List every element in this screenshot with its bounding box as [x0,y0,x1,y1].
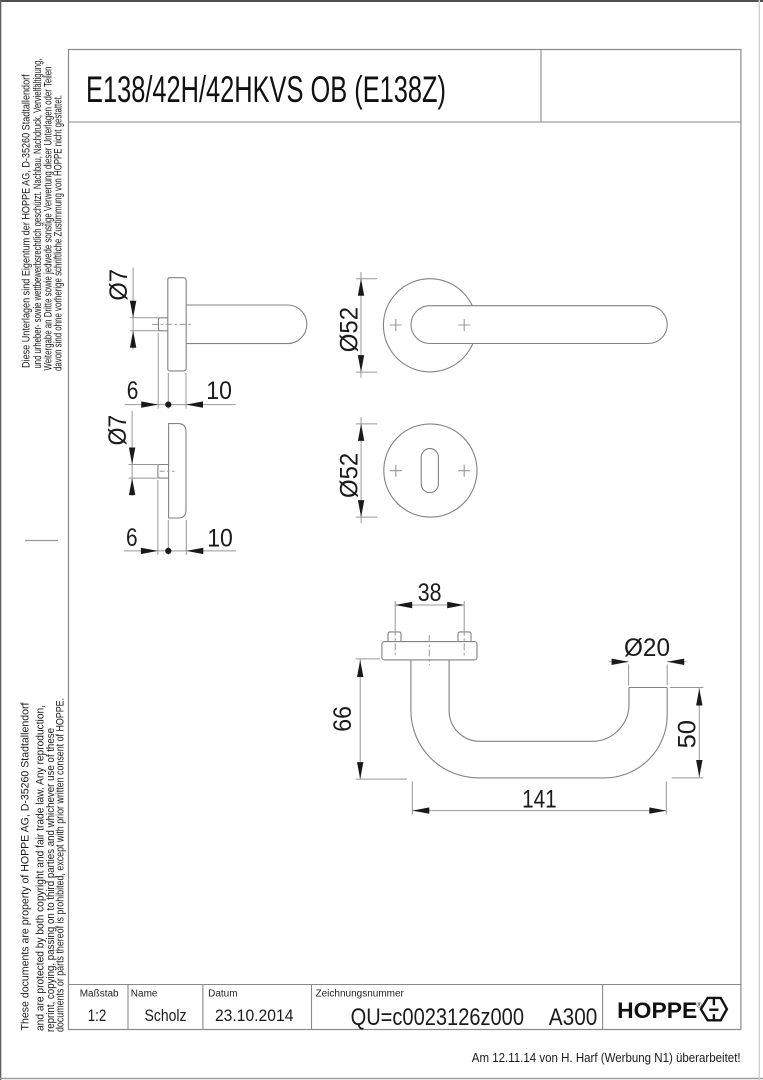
svg-text:Ø52: Ø52 [336,307,364,352]
svg-text:Scholz: Scholz [145,1006,187,1025]
svg-text:23.10.2014: 23.10.2014 [215,1006,294,1025]
svg-text:10: 10 [206,377,232,405]
svg-text:Ø52: Ø52 [336,453,364,498]
svg-text:10: 10 [207,525,233,553]
svg-text:Ø7: Ø7 [105,269,133,301]
svg-text:6: 6 [126,524,138,552]
svg-text:Diese Unterlagen sind Eigentum: Diese Unterlagen sind Eigentum der HOPPE… [20,74,32,368]
svg-text:Am 12.11.14 von H. Harf (Werbu: Am 12.11.14 von H. Harf (Werbung N1) übe… [472,1050,741,1065]
svg-text:141: 141 [522,786,557,814]
svg-text:QU=c0023126z000: QU=c0023126z000 [351,1004,524,1031]
svg-text:Name: Name [131,989,158,1000]
svg-text:Maßstab: Maßstab [80,989,119,1000]
svg-text:Ø7: Ø7 [104,415,132,446]
svg-text:HOPPE: HOPPE [617,998,697,1023]
svg-text:Ø20: Ø20 [624,634,670,662]
svg-text:38: 38 [418,579,442,607]
svg-text:1:2: 1:2 [88,1006,107,1025]
svg-text:Zeichnungsnummer: Zeichnungsnummer [316,989,405,1000]
svg-text:These documents are property o: These documents are property of HOPPE AG… [19,702,31,1031]
svg-text:E138/42H/42HKVS OB (E138Z): E138/42H/42HKVS OB (E138Z) [86,69,446,110]
svg-text:50: 50 [674,720,702,748]
svg-text:66: 66 [329,706,357,732]
svg-text:davon sind ohne vorherige schr: davon sind ohne vorherige schriftliche Z… [53,95,65,371]
svg-text:Datum: Datum [208,989,237,1000]
svg-text:documents or parts thereof is: documents or parts thereof is prohibited… [55,698,67,1032]
svg-text:6: 6 [127,377,139,405]
svg-text:A300: A300 [549,1004,598,1031]
